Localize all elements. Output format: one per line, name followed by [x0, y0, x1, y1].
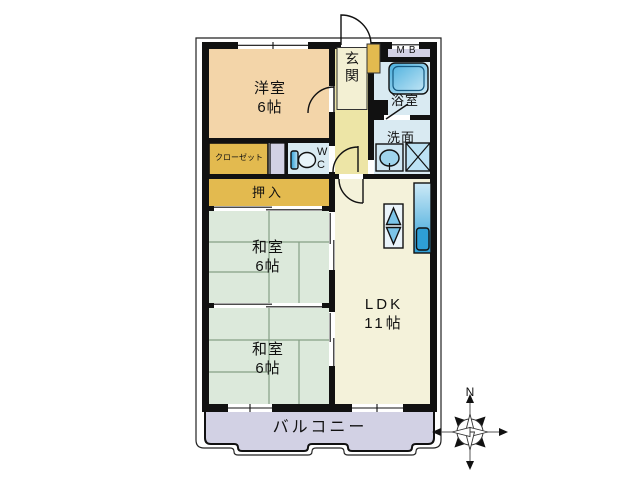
label-bathroom: 浴室	[378, 93, 432, 109]
label-japanese-room-1: 和室 6帖	[210, 238, 326, 276]
label-closet: クローゼット	[210, 152, 268, 164]
compass-rose	[432, 394, 508, 470]
label-entrance: 玄関	[342, 51, 362, 85]
label-ldk: LDK 11帖	[334, 295, 434, 333]
bathtub-icon	[389, 63, 428, 94]
toilet-icon	[291, 151, 316, 169]
entrance-door-arc	[341, 15, 371, 45]
label-wc: WC	[317, 146, 330, 172]
label-balcony: バルコニー	[230, 418, 410, 437]
floor-plan: 洋室 6帖 玄関 MB 浴室 洗面 クローゼット WC 押入 和室 6帖 和室 …	[0, 0, 640, 480]
label-oshiire: 押入	[210, 185, 326, 201]
label-western-room: 洋室 6帖	[210, 79, 330, 117]
label-compass-north: N	[458, 383, 482, 402]
kitchen-counter-icon	[414, 183, 431, 253]
label-japanese-room-2: 和室 6帖	[210, 340, 326, 378]
label-washroom: 洗面	[374, 130, 428, 146]
sink-icon	[376, 144, 403, 171]
label-meter-box: MB	[386, 44, 430, 57]
pipe-space	[270, 143, 285, 175]
washing-machine-icon	[406, 143, 430, 171]
shoe-cabinet	[367, 44, 380, 73]
stove-icon	[384, 204, 403, 248]
